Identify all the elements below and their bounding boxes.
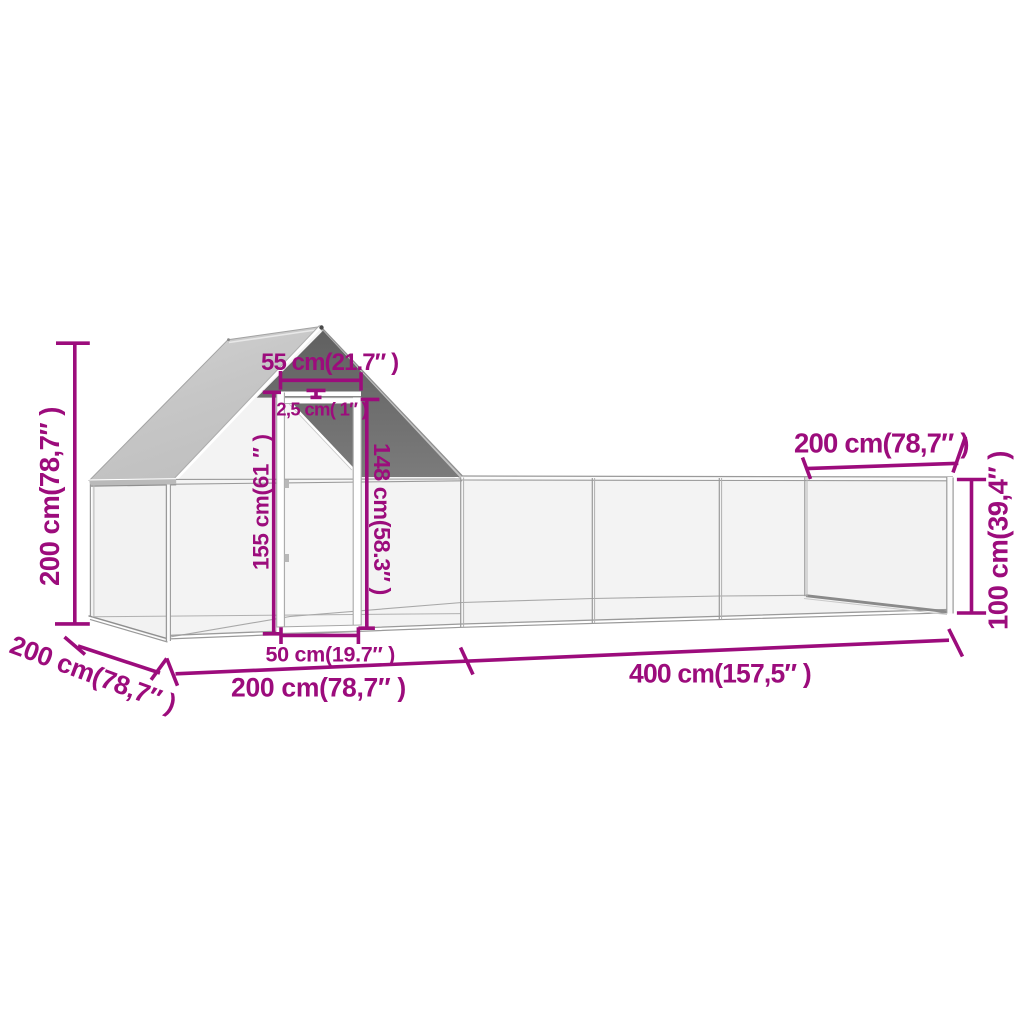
svg-text:2,5 cm( 1″ ): 2,5 cm( 1″ ) xyxy=(276,399,367,420)
svg-text:100 cm(39,4″ ): 100 cm(39,4″ ) xyxy=(983,451,1014,630)
svg-text:148 cm(58.3″ ): 148 cm(58.3″ ) xyxy=(369,443,395,595)
svg-text:55 cm(21.7″ ): 55 cm(21.7″ ) xyxy=(261,349,398,376)
svg-text:200 cm(78,7″ ): 200 cm(78,7″ ) xyxy=(34,407,65,586)
svg-text:155 cm(61 ″ ): 155 cm(61 ″ ) xyxy=(249,434,274,570)
svg-text:200 cm(78,7″ ): 200 cm(78,7″ ) xyxy=(231,673,406,703)
svg-text:400 cm(157,5″ ): 400 cm(157,5″ ) xyxy=(629,659,811,689)
svg-text:200 cm(78,7″ ): 200 cm(78,7″ ) xyxy=(794,428,969,459)
svg-text:50 cm(19.7″ ): 50 cm(19.7″ ) xyxy=(266,643,396,667)
